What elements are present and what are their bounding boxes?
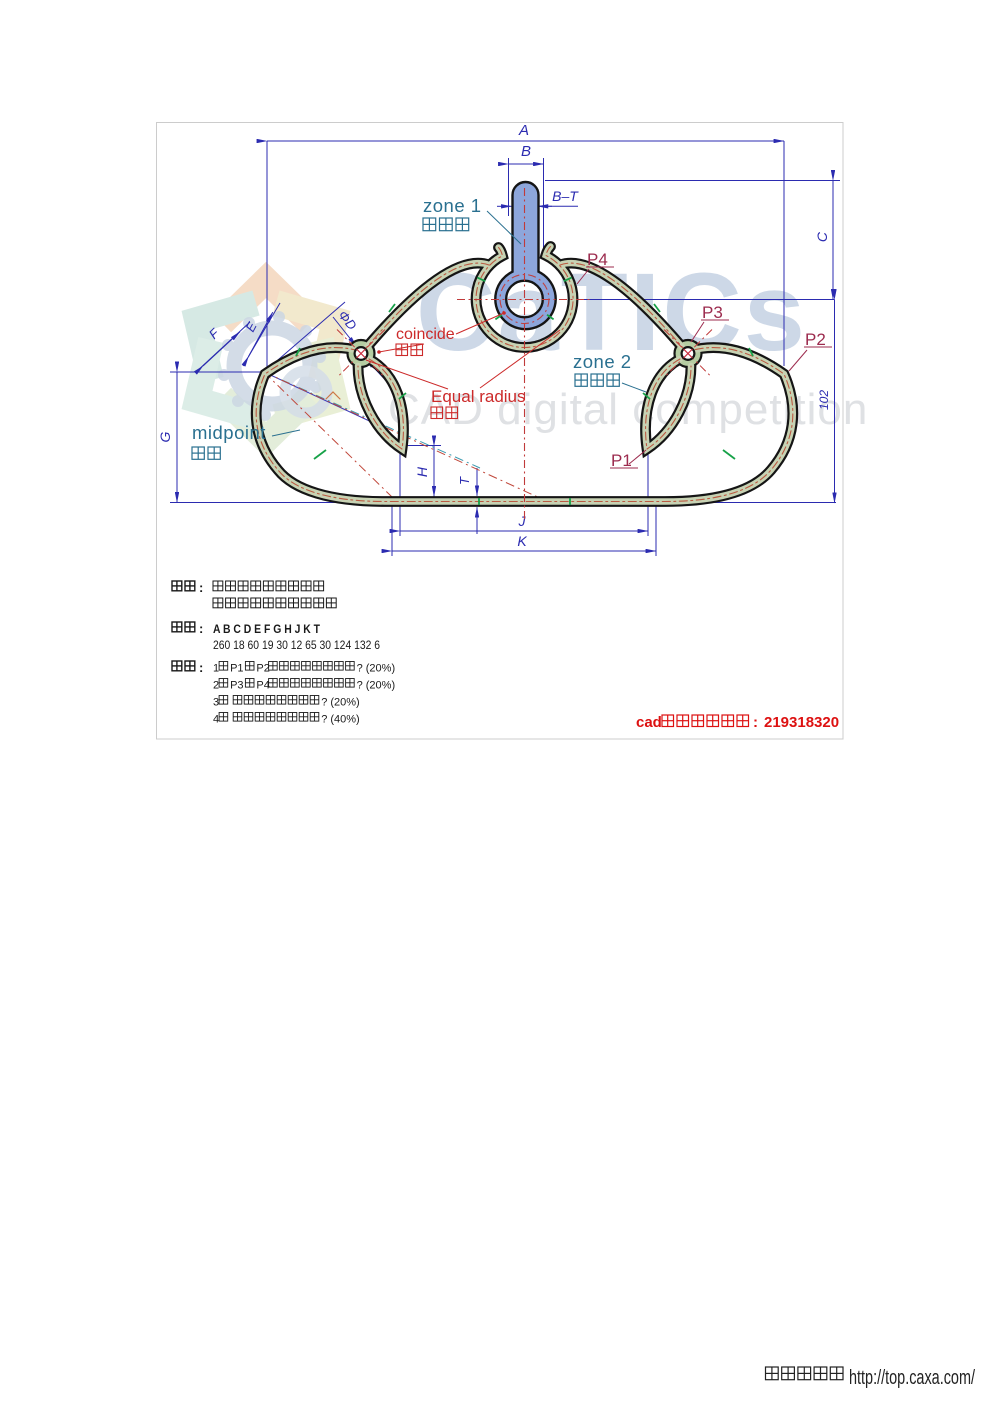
svg-text:zone 2: zone 2 bbox=[573, 351, 632, 372]
svg-text:B: B bbox=[521, 143, 531, 160]
svg-text:P2: P2 bbox=[805, 330, 826, 349]
svg-text:2: 2 bbox=[213, 680, 219, 692]
svg-text::: : bbox=[199, 660, 203, 675]
svg-text:260 18 60 19 30 12 65 30 124 1: 260 18 60 19 30 12 65 30 124 132 6 bbox=[213, 638, 380, 652]
svg-text:A: A bbox=[518, 122, 529, 139]
svg-text:P1: P1 bbox=[611, 451, 632, 470]
svg-text:midpoint: midpoint bbox=[192, 422, 266, 443]
svg-text:3: 3 bbox=[213, 697, 219, 709]
svg-text:102: 102 bbox=[817, 390, 831, 410]
svg-text::: : bbox=[199, 621, 203, 636]
svg-text:A B C D E F G H J K T: A B C D E F G H J K T bbox=[213, 622, 321, 636]
svg-text:P3: P3 bbox=[702, 303, 723, 322]
svg-text:P4: P4 bbox=[587, 250, 608, 269]
svg-text:http://top.caxa.com/: http://top.caxa.com/ bbox=[849, 1367, 975, 1389]
svg-text:G: G bbox=[157, 431, 173, 442]
svg-text:? (20%): ? (20%) bbox=[321, 697, 360, 709]
svg-text:? (20%): ? (20%) bbox=[357, 680, 396, 692]
svg-text:P1: P1 bbox=[230, 663, 243, 675]
svg-text:coincide: coincide bbox=[396, 326, 455, 343]
svg-text:C: C bbox=[814, 231, 830, 242]
svg-text:P2: P2 bbox=[256, 663, 269, 675]
svg-text:T: T bbox=[457, 476, 472, 485]
svg-text:P4: P4 bbox=[256, 680, 269, 692]
svg-text:P3: P3 bbox=[230, 680, 243, 692]
svg-text:? (40%): ? (40%) bbox=[321, 714, 360, 726]
svg-text:zone 1: zone 1 bbox=[423, 195, 482, 216]
svg-text::: : bbox=[199, 580, 203, 595]
svg-text::: : bbox=[753, 714, 758, 731]
svg-text:Equal radius: Equal radius bbox=[431, 387, 526, 406]
svg-text:219318320: 219318320 bbox=[764, 714, 839, 731]
svg-text:4: 4 bbox=[213, 714, 219, 726]
svg-text:cad: cad bbox=[636, 714, 662, 731]
svg-text:1: 1 bbox=[213, 663, 219, 675]
svg-text:? (20%): ? (20%) bbox=[357, 663, 396, 675]
svg-text:K: K bbox=[517, 533, 527, 549]
svg-text:J: J bbox=[518, 513, 527, 529]
svg-text:H: H bbox=[414, 466, 430, 477]
svg-text:B–T: B–T bbox=[552, 188, 579, 204]
